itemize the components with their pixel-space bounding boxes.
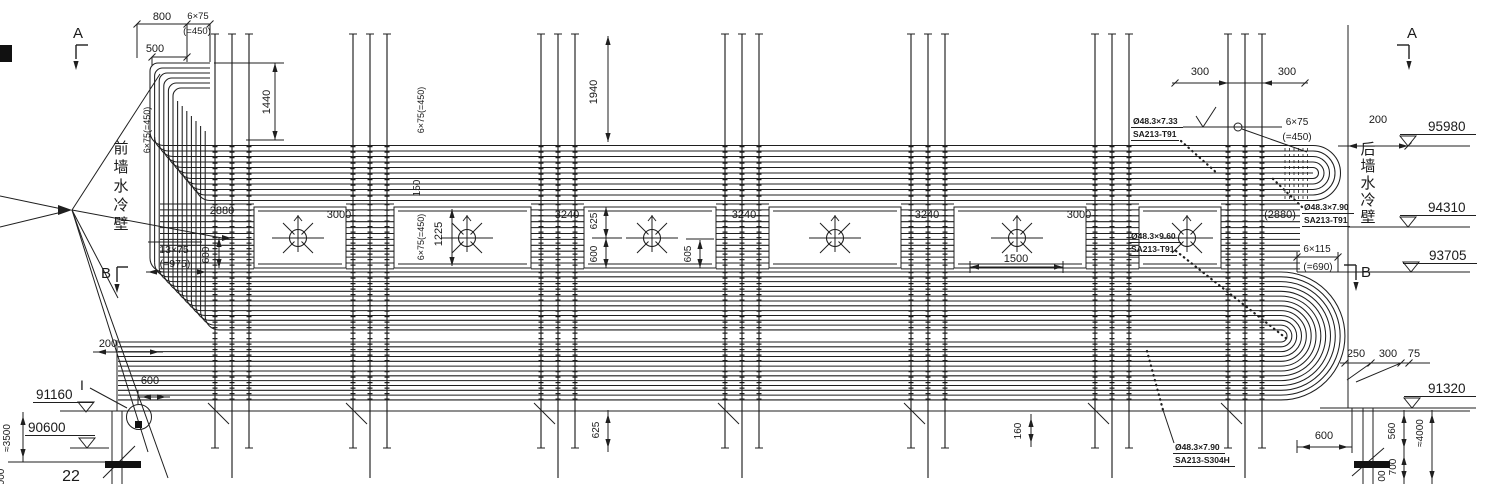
dim-1440: 1440 (261, 90, 273, 114)
dim-3240-1: 3240 (555, 209, 579, 221)
dim-150: 150 (412, 179, 423, 196)
dim-1225: 1225 (433, 222, 445, 246)
dim-3240-2: 3240 (732, 209, 756, 221)
section-marker-A-left: A (73, 25, 83, 42)
dim-6x75-top: 6×75 (187, 11, 208, 22)
dim-600-bottom-left: 600 (141, 375, 159, 387)
dim-75: 75 (1408, 348, 1420, 360)
dim-300-top-right: 300 (1278, 66, 1296, 78)
section-marker-B-right: B (1361, 264, 1371, 281)
dim-eq450-top: (=450) (183, 26, 211, 37)
dim-2880-right: (2880) (1264, 209, 1296, 221)
elev-90600: 90600 (28, 420, 66, 435)
dim-600-opening: 600 (589, 245, 600, 262)
dim-600-band-left: 600 (201, 246, 212, 263)
solid-block (0, 45, 12, 62)
dim-1940: 1940 (588, 80, 600, 104)
wall-label-front: 冷 (113, 197, 128, 214)
dim-eq450-right: (=450) (1282, 132, 1311, 143)
wall-label-rear: 墙 (1360, 158, 1375, 175)
dim-200-bottom-left: 200 (99, 338, 117, 350)
opening-mask (394, 204, 531, 271)
dim-6x75-right: 6×75 (1286, 117, 1309, 128)
dim-560: 560 (1387, 422, 1398, 439)
wall-label-rear: 壁 (1360, 209, 1375, 226)
dim-3240-3: 3240 (915, 209, 939, 221)
elev-93705: 93705 (1429, 248, 1467, 263)
dim-3500: ≈3500 (2, 424, 13, 452)
elev-94310: 94310 (1428, 200, 1466, 215)
dim-625-opening: 625 (589, 212, 600, 229)
elev-91320: 91320 (1428, 381, 1466, 396)
material-4-grade: SA213-S304H (1175, 455, 1230, 465)
dim-160: 160 (1013, 422, 1024, 439)
wall-label-rear: 水 (1360, 175, 1375, 192)
dim-eq975: (=975) (160, 258, 191, 270)
material-1-grade: SA213-T91 (1133, 129, 1177, 139)
solid-block (135, 421, 142, 428)
dim-300-bottom: 300 (1379, 348, 1397, 360)
axis-22: 22 (62, 468, 80, 484)
dim-4000: ≈4000 (1415, 419, 1426, 447)
dim-700: 700 (1388, 458, 1399, 475)
wall-label-rear: 后 (1360, 141, 1375, 158)
dim-eq690: (=690) (1303, 262, 1332, 273)
wall-label-front: 前 (113, 140, 128, 157)
dim-13x75: 13×75 (159, 244, 189, 256)
dim-6x115: 6×115 (1303, 244, 1331, 255)
material-2-size: Ø48.3×7.90 (1304, 202, 1349, 212)
section-marker-B-left: B (101, 265, 111, 282)
detail-I: I (80, 377, 84, 393)
solid-block (105, 461, 141, 468)
material-3-grade: SA213-T91 (1131, 244, 1175, 254)
wall-label-front: 墙 (113, 159, 128, 176)
dim-200-right: 200 (1369, 114, 1387, 126)
dim-600-bottom-right: 600 (1315, 430, 1333, 442)
drawing-sheet: 8006×75(=450)50014406×75(=450)13×75(=975… (0, 0, 1511, 484)
drawing-canvas: 8006×75(=450)50014406×75(=450)13×75(=975… (0, 0, 1511, 484)
elev-91160: 91160 (36, 387, 73, 402)
material-1-size: Ø48.3×7.33 (1133, 116, 1178, 126)
num-000-clipped: 000 (0, 468, 7, 484)
dim-625-bottom: 625 (591, 421, 602, 438)
material-4-size: Ø48.3×7.90 (1175, 442, 1220, 452)
dim-6x75-eq450-left: 6×75(=450) (142, 107, 152, 154)
dim-1500: 1500 (1004, 253, 1028, 265)
elev-95980: 95980 (1428, 119, 1466, 134)
wall-label-front: 水 (113, 178, 128, 195)
material-3-size: Ø48.3×9.60 (1131, 231, 1176, 241)
dim-6x75-eq450-mid2: 6×75(=450) (416, 214, 426, 261)
dim-300-top-left: 300 (1191, 66, 1209, 78)
dim-3000-2: 3000 (1067, 209, 1091, 221)
solid-block (1354, 461, 1390, 468)
wall-label-front: 壁 (113, 216, 128, 233)
section-marker-A-right: A (1407, 25, 1417, 42)
num-00-clipped: 00 (1377, 470, 1388, 482)
wall-label-rear: 冷 (1360, 192, 1375, 209)
dim-800: 800 (153, 11, 171, 23)
dim-250: 250 (1347, 348, 1365, 360)
dim-6x75-eq450-mid1: 6×75(=450) (416, 87, 426, 134)
dim-500: 500 (146, 43, 164, 55)
dim-3000-1: 3000 (327, 209, 351, 221)
dim-605: 605 (683, 245, 694, 262)
material-2-grade: SA213-T91 (1304, 215, 1348, 225)
dim-2880-left: 2880 (210, 205, 234, 217)
